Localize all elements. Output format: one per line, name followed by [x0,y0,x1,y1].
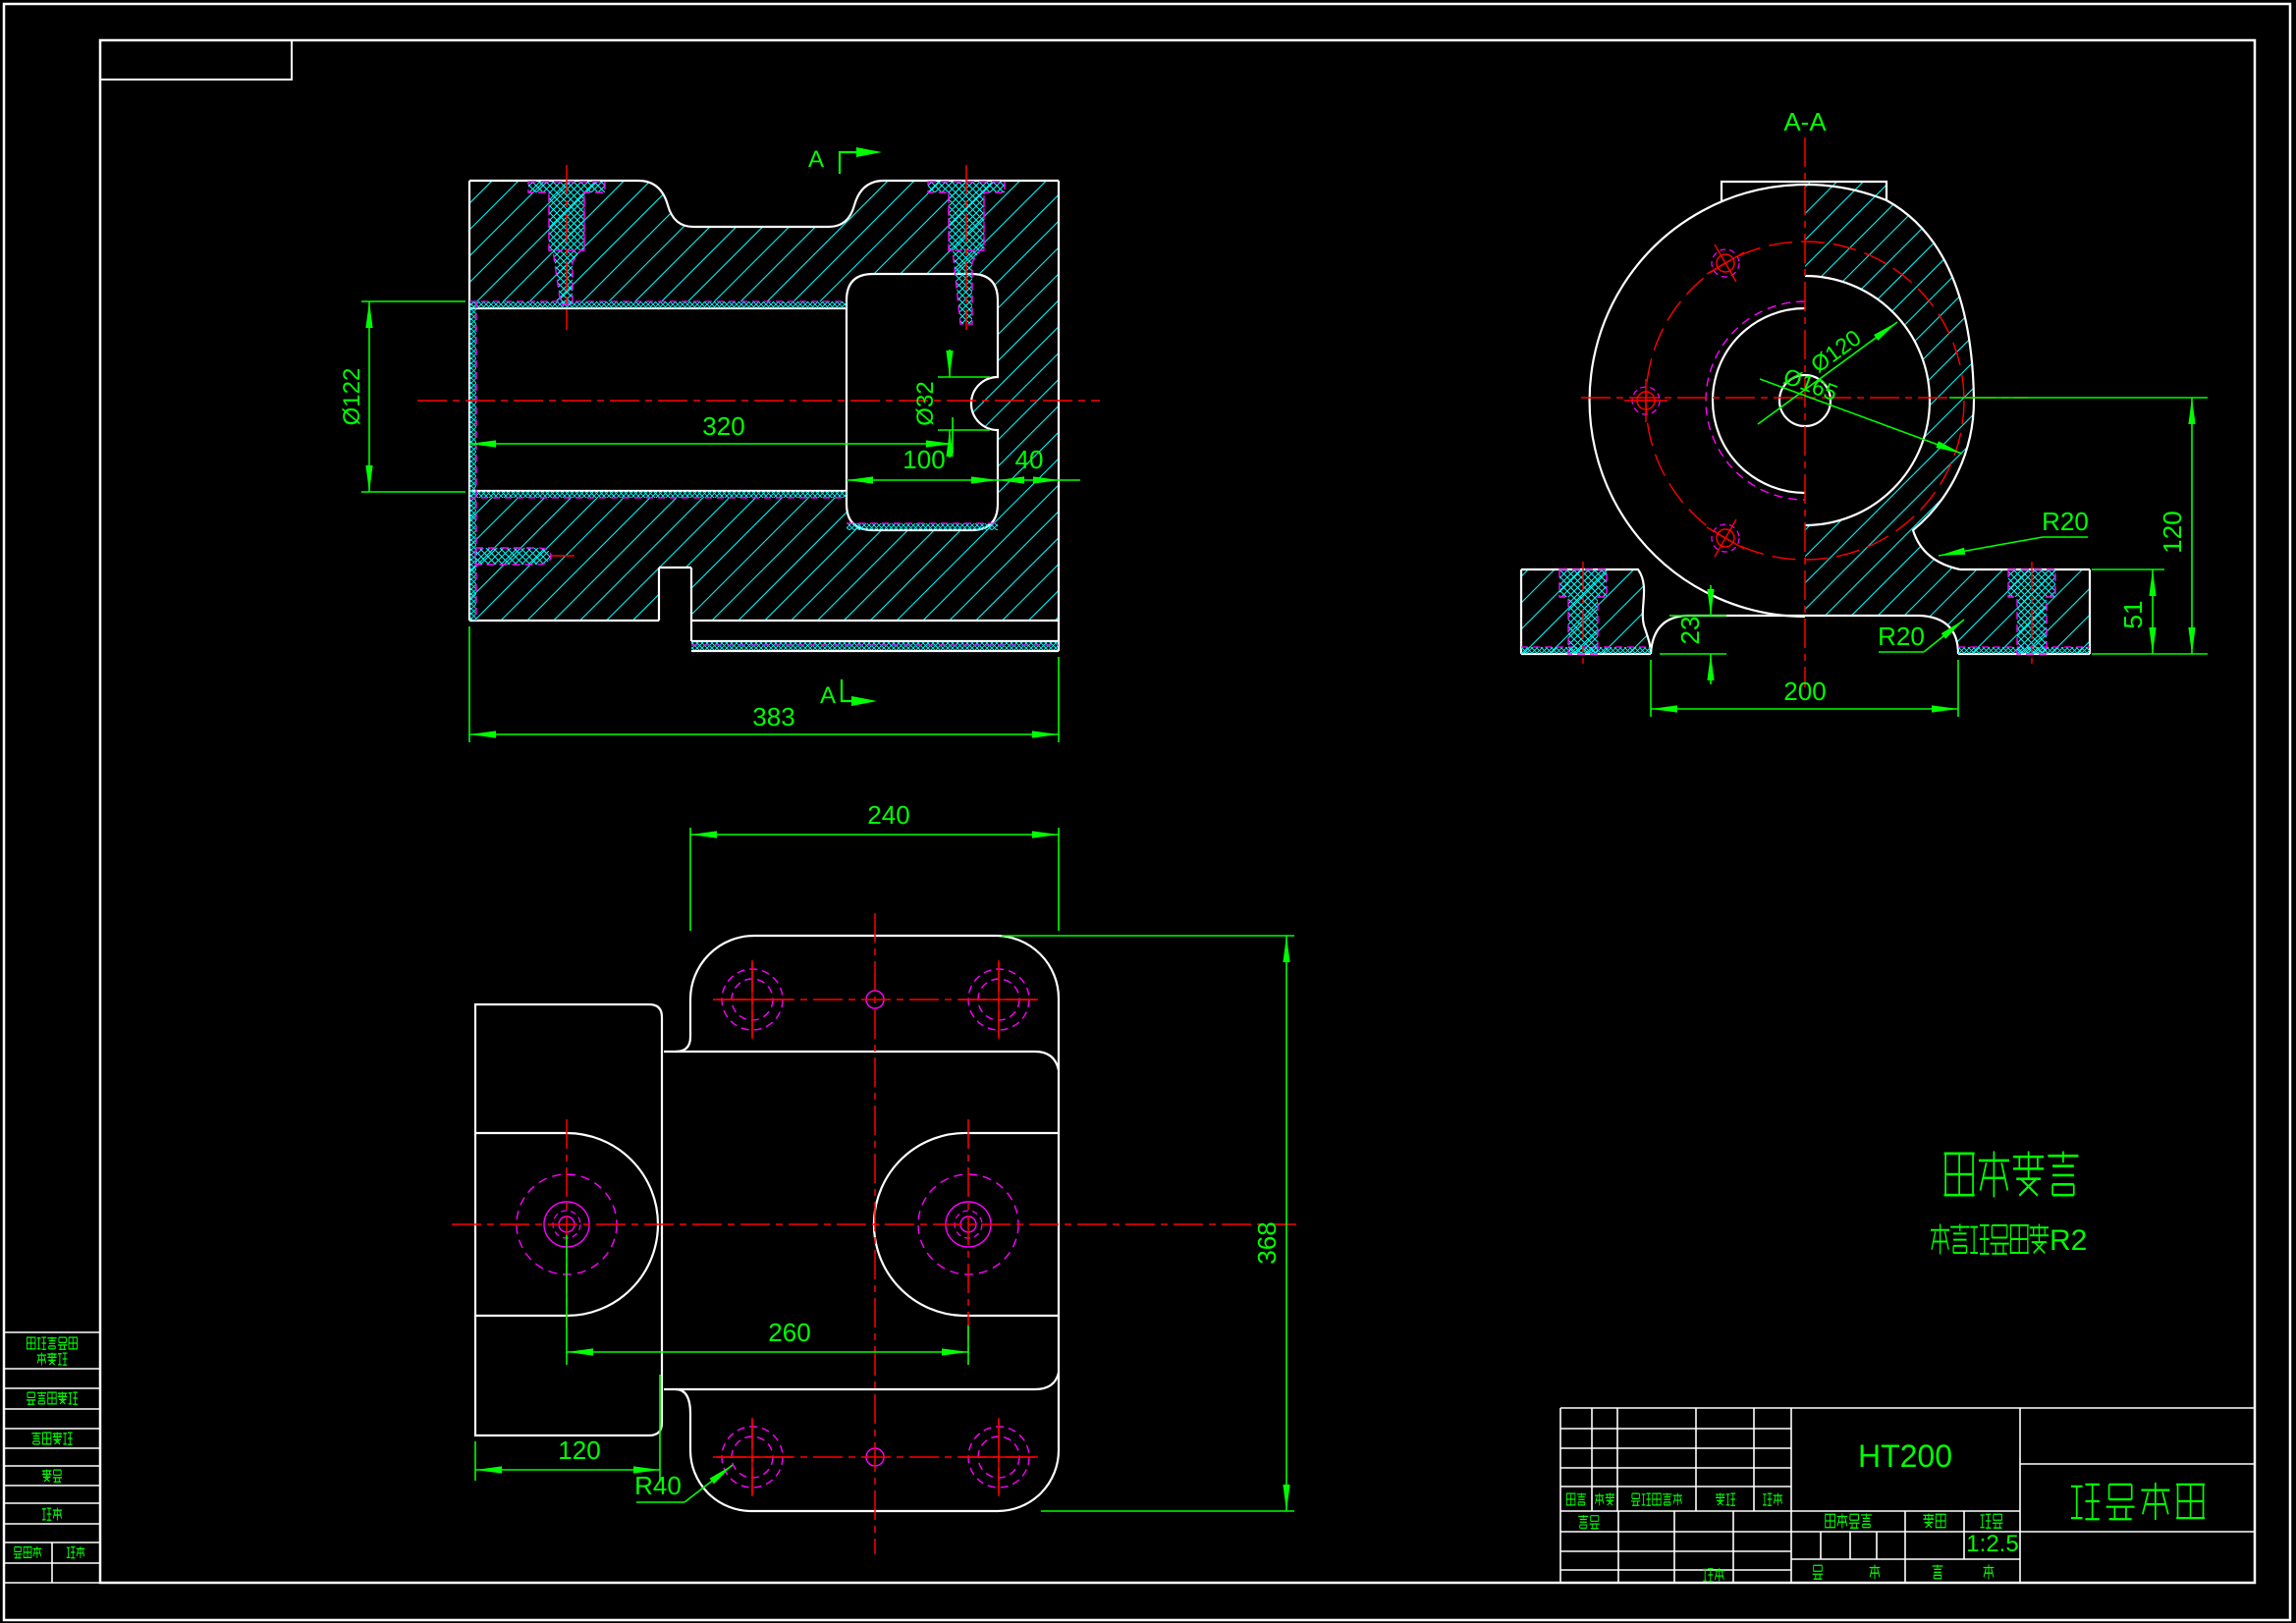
svg-text:1:2.5: 1:2.5 [1966,1531,2018,1557]
svg-text:A: A [820,682,836,709]
svg-text:R40: R40 [634,1471,682,1500]
svg-text:120: 120 [558,1435,600,1465]
svg-text:200: 200 [1783,676,1826,706]
svg-text:R20: R20 [1878,622,1925,651]
svg-text:HT200: HT200 [1858,1438,1952,1474]
svg-text:383: 383 [752,702,794,731]
svg-text:23: 23 [1675,617,1705,645]
svg-text:R2: R2 [2050,1224,2087,1257]
svg-text:120: 120 [2158,511,2187,553]
svg-text:320: 320 [702,411,744,441]
svg-text:A-A: A-A [1783,107,1827,136]
svg-text:100: 100 [902,445,945,474]
svg-text:240: 240 [867,800,909,830]
svg-text:A: A [808,146,824,173]
svg-text:368: 368 [1252,1221,1282,1264]
svg-text:R20: R20 [2042,507,2089,536]
svg-text:40: 40 [1015,445,1044,474]
svg-text:Ø122: Ø122 [339,368,365,426]
svg-text:Ø32: Ø32 [912,381,939,425]
svg-text:260: 260 [768,1318,810,1347]
svg-text:51: 51 [2118,601,2148,629]
